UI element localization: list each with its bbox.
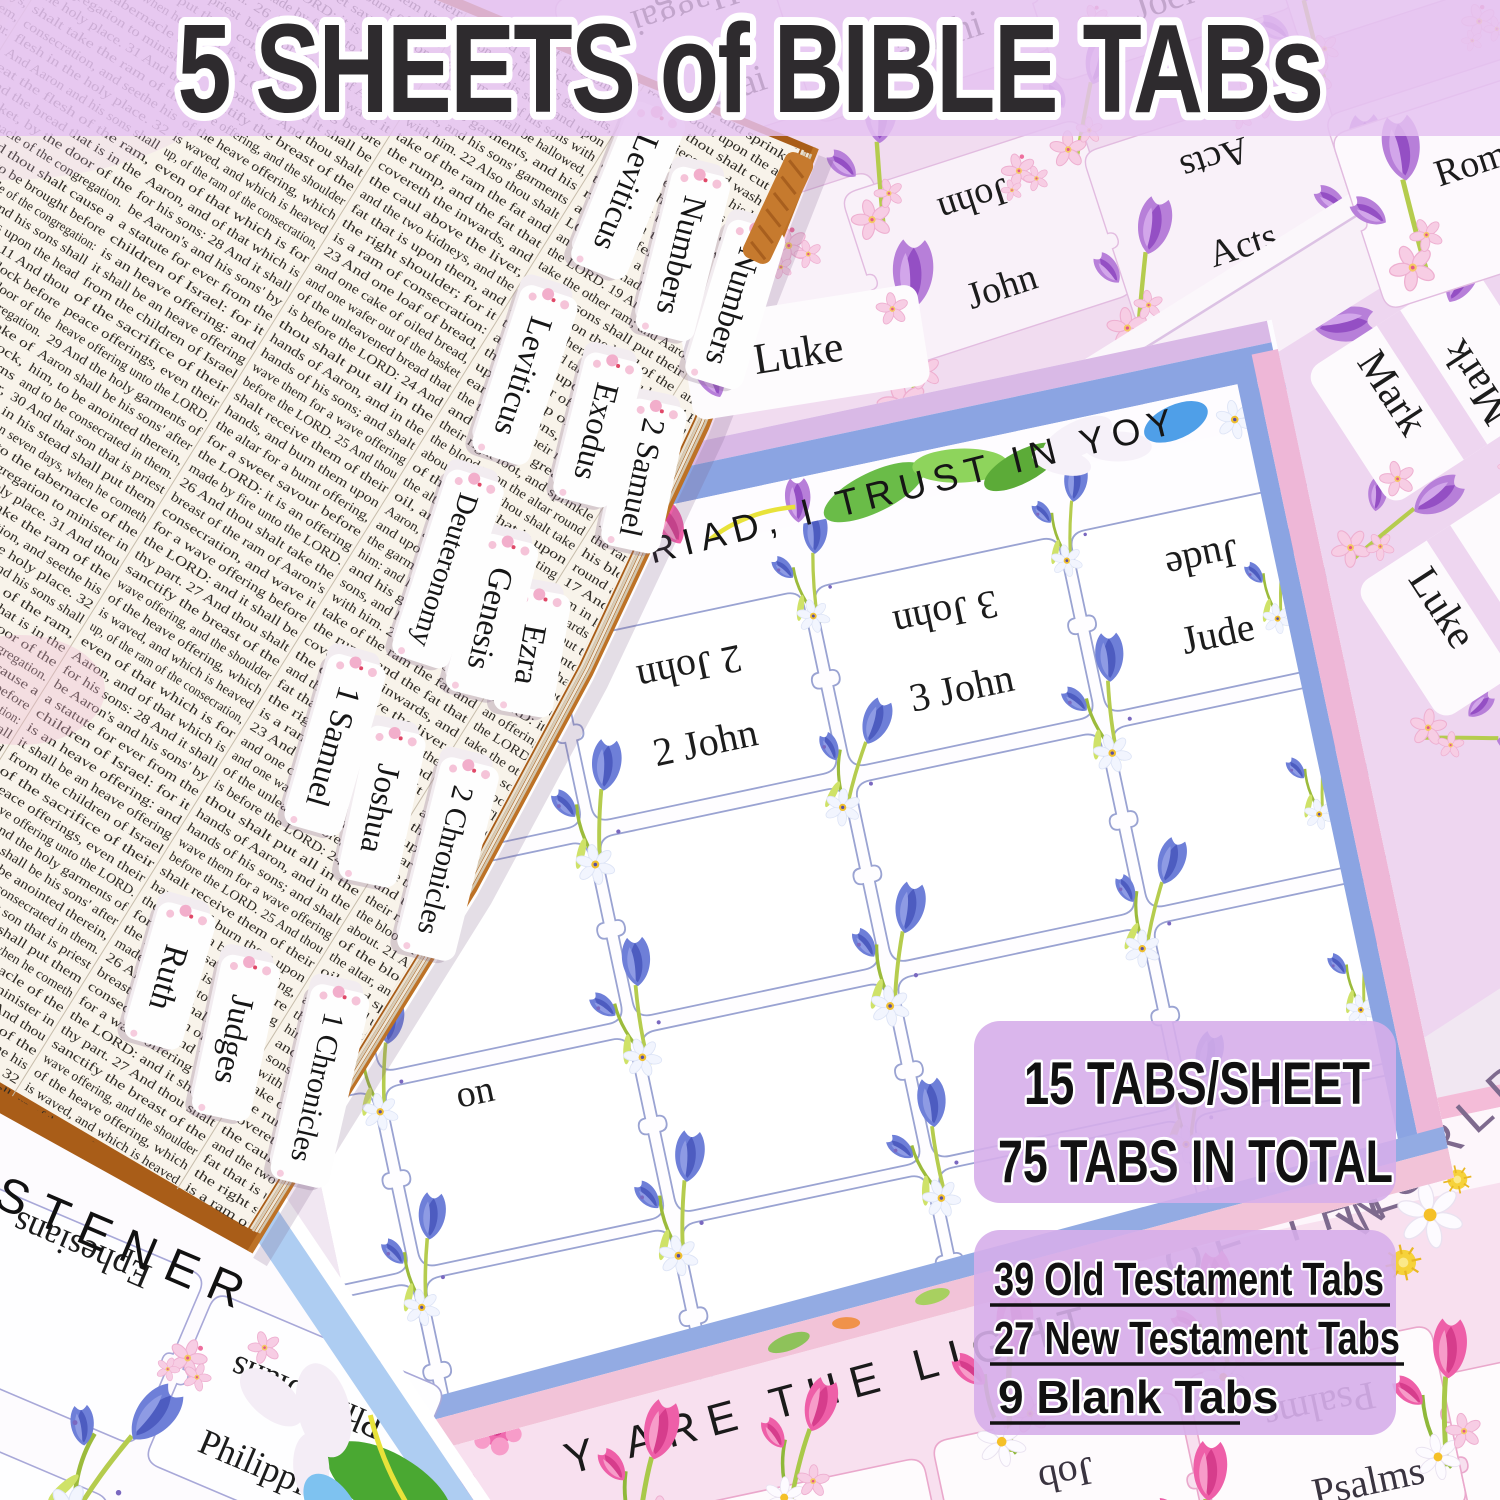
svg-text:15 TABS/SHEET: 15 TABS/SHEET	[1024, 1050, 1370, 1117]
svg-text:5 SHEETS of BIBLE TABs: 5 SHEETS of BIBLE TABs	[178, 0, 1323, 139]
svg-text:27 New Testament Tabs: 27 New Testament Tabs	[994, 1312, 1400, 1364]
svg-text:75 TABS IN TOTAL: 75 TABS IN TOTAL	[998, 1128, 1393, 1195]
svg-text:9 Blank Tabs: 9 Blank Tabs	[998, 1371, 1278, 1423]
svg-text:39 Old Testament Tabs: 39 Old Testament Tabs	[994, 1253, 1384, 1305]
